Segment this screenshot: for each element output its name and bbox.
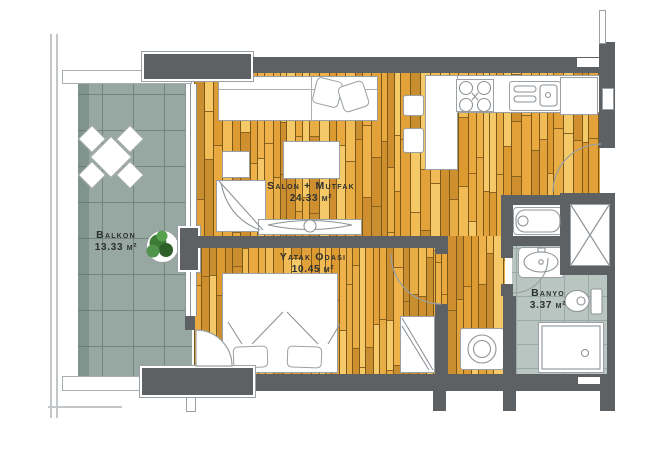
side-table: [222, 151, 250, 178]
bed-pillow: [287, 345, 323, 368]
glass-railing-bottom-line: [48, 406, 122, 408]
wall-top: [253, 57, 600, 73]
wall-column-top-left: [142, 52, 253, 81]
wall-stub-bottom-2: [503, 391, 516, 411]
window-right-wall: [602, 88, 614, 110]
room-label-balkon: Balkon 13.33 m²: [95, 229, 138, 254]
room-area: 13.33 m²: [95, 241, 138, 254]
shower-tray: [538, 322, 604, 373]
room-name: Yatak Odası: [280, 251, 346, 263]
bathtub: [513, 207, 563, 235]
wall-notch-top-right: [577, 58, 600, 67]
wall-stub-bottom-3: [600, 391, 614, 411]
window-salon: [185, 84, 197, 226]
wall-salon-bedroom: [194, 236, 448, 248]
coffee-table: [283, 141, 340, 179]
wall-stub-bottom-1: [433, 391, 446, 411]
glass-railing-outer: [50, 34, 52, 418]
glass-railing-inner: [56, 34, 58, 418]
bar-stool: [403, 128, 424, 153]
potted-plant: [146, 230, 179, 263]
tv-unit: [258, 219, 362, 235]
wall-stub-above-right: [599, 10, 606, 44]
floor-plan: Balkon 13.33 m² Salon + Mutfak 24.33 m² …: [0, 0, 660, 467]
wall-washer-niche: [503, 296, 516, 392]
room-label-banyo: Banyo 3.37 m²: [530, 287, 566, 312]
room-name: Banyo: [530, 287, 566, 299]
window-bedroom: [185, 272, 197, 316]
wall-column-bottom-left: [140, 366, 255, 397]
wall-facade-pier: [185, 316, 195, 330]
room-area: 3.37 m²: [530, 299, 566, 312]
room-label-yatak: Yatak Odası 10.45 m²: [280, 251, 346, 276]
wall-bottom: [250, 374, 612, 391]
wall-bedroom-east-upper: [435, 236, 448, 254]
wall-bath-west-upper: [501, 205, 513, 258]
washing-machine: [460, 328, 504, 370]
wall-notch-bottom-right: [578, 377, 600, 384]
fridge: [560, 77, 598, 115]
tall-cabinet: [425, 75, 458, 170]
room-name: Salon + Mutfak: [267, 180, 355, 192]
washbasin: [518, 247, 565, 278]
room-name: Balkon: [95, 229, 138, 241]
ventilation-shaft: [570, 204, 610, 266]
wall-bath-west-stub: [501, 284, 513, 296]
room-area: 10.45 m²: [280, 263, 346, 276]
bar-stool: [403, 95, 424, 116]
room-area: 24.33 m²: [267, 192, 355, 205]
wall-tub-bottom: [501, 236, 571, 246]
wall-facade-block: [178, 226, 200, 272]
kitchen-sink: [509, 81, 561, 111]
wall-bedroom-east-lower: [435, 304, 448, 374]
wardrobe: [400, 316, 435, 373]
balcony-rail-bottom: [62, 376, 146, 391]
door-frame-below-block: [186, 397, 196, 412]
room-label-salon: Salon + Mutfak 24.33 m²: [267, 180, 355, 205]
stove: [456, 79, 494, 112]
